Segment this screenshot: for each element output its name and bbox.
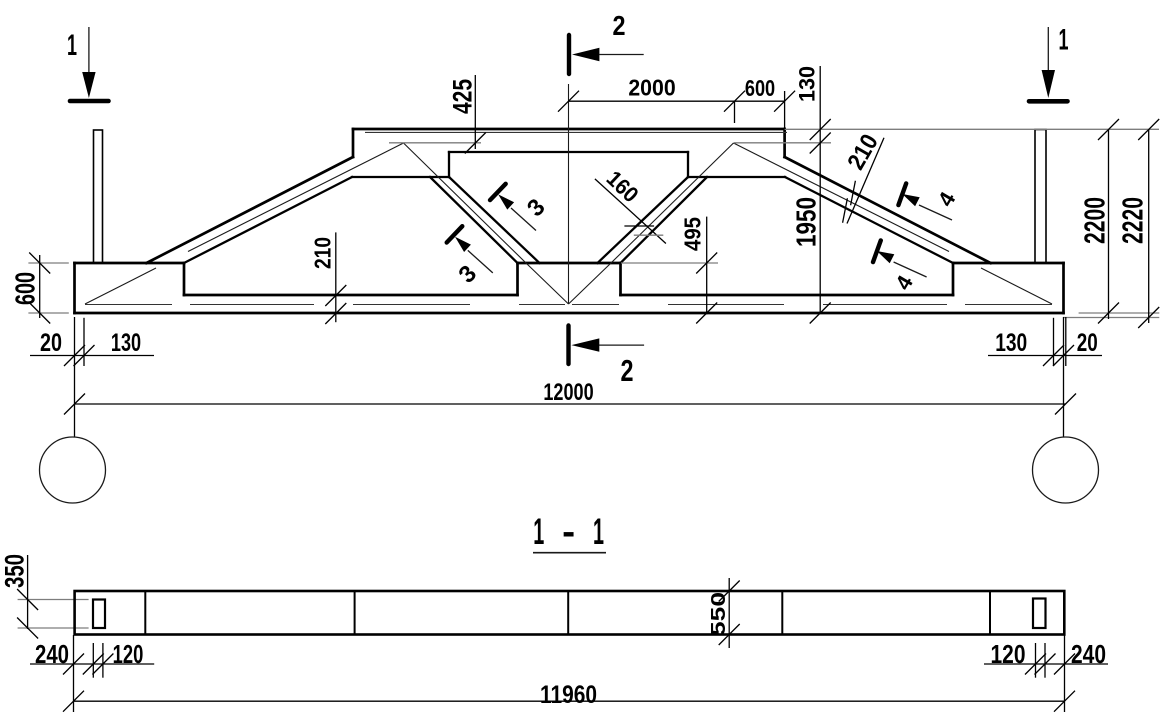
svg-text:120: 120 [113,639,144,669]
svg-text:210: 210 [310,237,336,269]
svg-text:130: 130 [995,329,1027,357]
svg-text:550: 550 [708,592,730,636]
svg-text:130: 130 [111,329,141,357]
svg-text:120: 120 [991,639,1026,669]
svg-text:425: 425 [448,79,478,114]
svg-text:2200: 2200 [1080,197,1112,244]
svg-text:130: 130 [795,66,820,102]
svg-text:600: 600 [10,272,41,305]
svg-text:495: 495 [680,217,706,251]
svg-text:2: 2 [621,353,634,388]
svg-text:20: 20 [1077,329,1098,357]
svg-text:1: 1 [1059,24,1069,57]
svg-text:600: 600 [745,75,775,101]
svg-text:1: 1 [593,511,604,552]
svg-text:-: - [562,511,575,552]
svg-text:2220: 2220 [1118,197,1150,244]
svg-text:1: 1 [67,29,77,62]
svg-text:1: 1 [533,511,544,552]
svg-text:12000: 12000 [543,379,593,406]
svg-text:350: 350 [0,554,30,588]
svg-text:1950: 1950 [791,197,822,247]
svg-text:240: 240 [1071,639,1106,669]
svg-text:2: 2 [613,10,626,41]
svg-text:11960: 11960 [540,681,597,709]
svg-text:20: 20 [40,329,62,357]
svg-text:240: 240 [35,639,69,669]
svg-text:2000: 2000 [628,74,675,100]
